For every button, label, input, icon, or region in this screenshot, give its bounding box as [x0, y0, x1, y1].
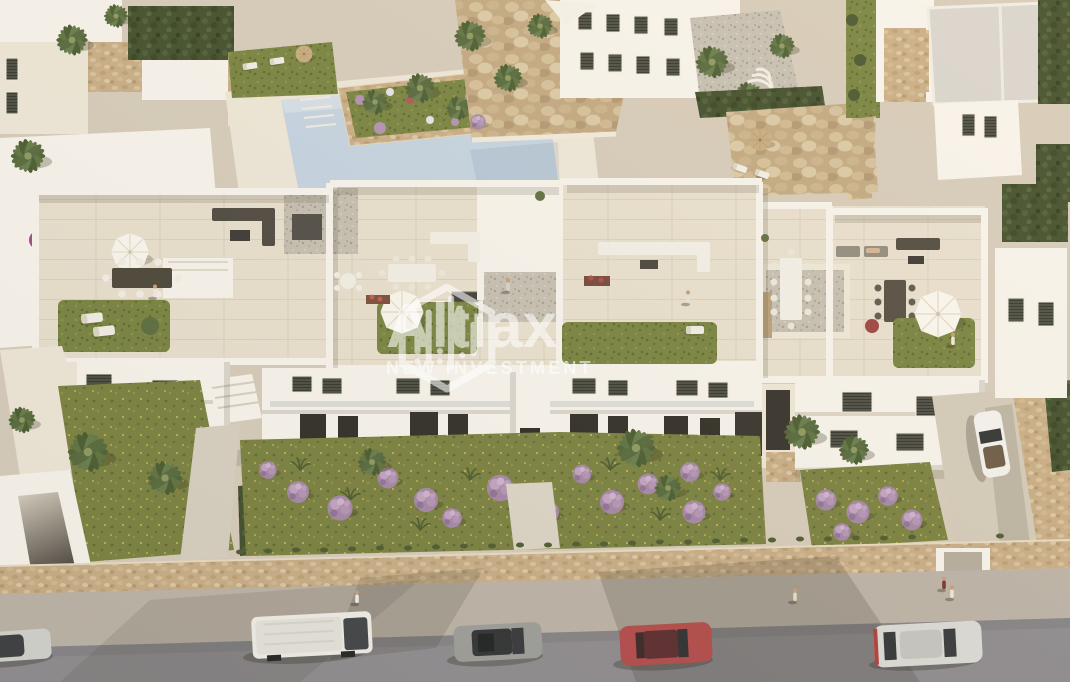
- render-image: Altiax NEW INVESTMENT: [0, 0, 1070, 682]
- light-wash: [0, 0, 1070, 682]
